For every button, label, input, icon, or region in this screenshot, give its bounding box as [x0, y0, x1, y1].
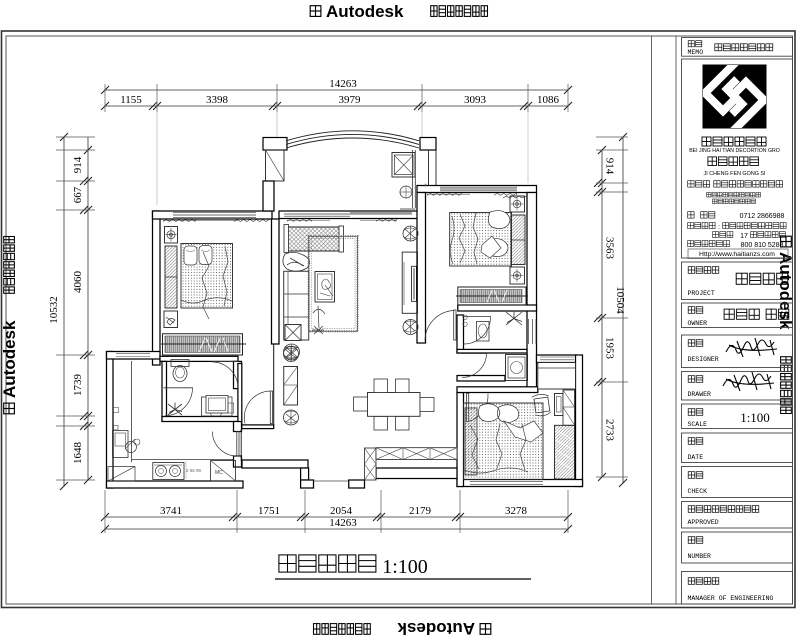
svg-text:3741: 3741: [160, 505, 182, 517]
svg-text:3979: 3979: [339, 94, 362, 106]
svg-text:914: 914: [604, 158, 616, 175]
svg-text:1739: 1739: [72, 374, 84, 397]
svg-text:2054: 2054: [330, 505, 353, 517]
svg-text:BEI JING HAI TIAN DECORTION GR: BEI JING HAI TIAN DECORTION GRO: [689, 148, 780, 154]
svg-text:1:100: 1:100: [740, 410, 770, 425]
svg-text:914: 914: [72, 156, 84, 173]
svg-text:14263: 14263: [329, 517, 357, 529]
svg-text:Autodesk: Autodesk: [0, 320, 19, 398]
svg-text:JI CHENG FEN GONG SI: JI CHENG FEN GONG SI: [704, 171, 766, 177]
svg-text:DESIGNER: DESIGNER: [688, 356, 719, 363]
svg-text:10532: 10532: [48, 296, 60, 324]
svg-text:2179: 2179: [409, 505, 432, 517]
svg-text:Autodesk: Autodesk: [397, 619, 475, 638]
svg-text:1953: 1953: [604, 337, 616, 360]
svg-text:2 66 99: 2 66 99: [186, 468, 202, 473]
svg-text:NUMBER: NUMBER: [688, 553, 712, 560]
svg-text:SCALE: SCALE: [688, 421, 708, 428]
svg-text:MEMO: MEMO: [688, 49, 704, 56]
svg-text:MANAGER OF ENGINEERING: MANAGER OF ENGINEERING: [688, 595, 774, 602]
svg-text:1751: 1751: [258, 505, 280, 517]
svg-text:MC: MC: [215, 470, 223, 476]
svg-text:1086: 1086: [537, 94, 560, 106]
svg-text:3563: 3563: [604, 237, 616, 260]
svg-text:Http://www.haitianzs.com: Http://www.haitianzs.com: [699, 251, 775, 258]
svg-text:4060: 4060: [72, 271, 84, 294]
svg-text:1155: 1155: [120, 94, 142, 106]
svg-text:0712 2866988: 0712 2866988: [740, 213, 785, 220]
svg-text:3398: 3398: [206, 94, 229, 106]
svg-text:Autodesk: Autodesk: [326, 2, 404, 21]
svg-text:APPROVED: APPROVED: [688, 519, 719, 526]
svg-text:DATE: DATE: [688, 454, 704, 461]
svg-text:DRAWER: DRAWER: [688, 391, 712, 398]
svg-text:3278: 3278: [505, 505, 528, 517]
svg-text::: :: [718, 224, 720, 231]
svg-text:667: 667: [72, 186, 84, 203]
svg-text:800 810 5288: 800 810 5288: [741, 242, 784, 249]
svg-text:10504: 10504: [614, 286, 626, 314]
svg-text:OWNER: OWNER: [688, 320, 708, 327]
svg-text:14263: 14263: [329, 78, 357, 90]
svg-text:3093: 3093: [464, 94, 487, 106]
svg-text:2733: 2733: [604, 419, 616, 442]
svg-text:17: 17: [740, 233, 748, 240]
svg-text:PROJECT: PROJECT: [688, 290, 715, 297]
svg-text:1648: 1648: [72, 442, 84, 465]
svg-text:1:100: 1:100: [382, 556, 428, 578]
svg-text:CHECK: CHECK: [688, 488, 708, 495]
